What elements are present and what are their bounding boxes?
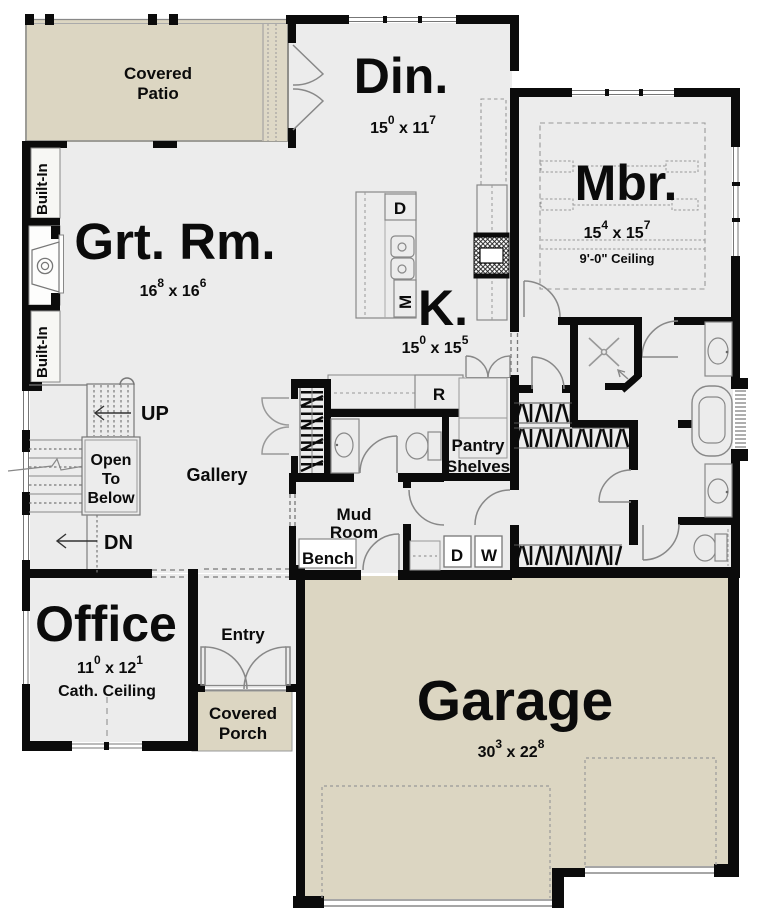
svg-text:M: M [396, 295, 415, 309]
svg-text:Built-In: Built-In [34, 163, 51, 215]
svg-text:Grt. Rm.: Grt. Rm. [74, 213, 275, 270]
svg-text:Porch: Porch [219, 724, 267, 743]
svg-text:R: R [433, 385, 445, 404]
svg-text:DN: DN [104, 532, 133, 554]
svg-text:Patio: Patio [137, 84, 179, 103]
svg-text:Below: Below [87, 490, 135, 507]
svg-text:UP: UP [141, 403, 169, 425]
svg-text:Office: Office [35, 596, 177, 652]
svg-text:Open: Open [91, 452, 132, 469]
svg-text:Pantry: Pantry [452, 436, 505, 455]
svg-text:Garage: Garage [417, 669, 613, 733]
svg-text:To: To [102, 471, 121, 488]
svg-text:Mbr.: Mbr. [575, 155, 678, 211]
svg-text:K.: K. [418, 280, 468, 336]
svg-text:Built-In: Built-In [34, 326, 51, 378]
svg-text:Covered: Covered [209, 704, 277, 723]
svg-text:Entry: Entry [221, 625, 265, 644]
svg-text:Mud: Mud [337, 505, 372, 524]
svg-text:Gallery: Gallery [186, 465, 247, 485]
svg-text:Room: Room [330, 523, 378, 542]
svg-text:Din.: Din. [354, 48, 448, 104]
svg-text:D: D [394, 199, 406, 218]
svg-text:Cath. Ceiling: Cath. Ceiling [58, 683, 156, 700]
svg-text:Bench: Bench [302, 549, 354, 568]
svg-text:W: W [481, 546, 498, 565]
svg-text:9'-0" Ceiling: 9'-0" Ceiling [580, 251, 655, 266]
svg-text:D: D [451, 546, 463, 565]
svg-text:Covered: Covered [124, 64, 192, 83]
